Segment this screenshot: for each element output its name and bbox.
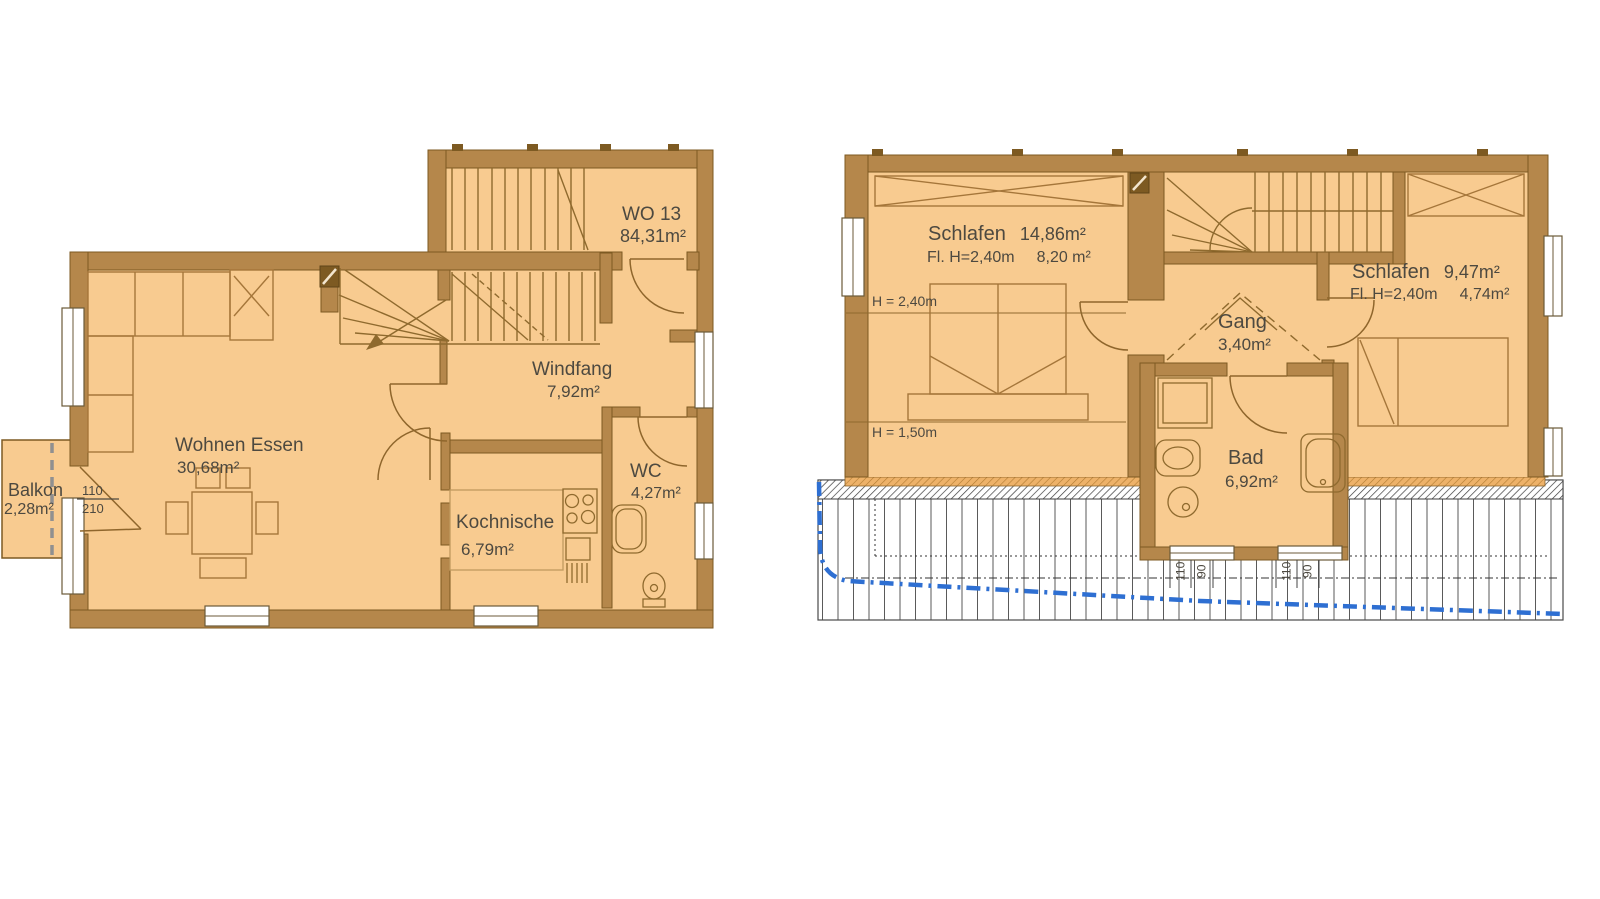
apartment-floor <box>70 252 713 628</box>
room-detail-bedroom-left: Fl. H=2,40m 8,20 m² <box>927 250 1091 267</box>
room-detail-bedroom-right: Fl. H=2,40m 4,74m² <box>1350 287 1509 304</box>
unit-number-label: WO 13 <box>622 205 681 225</box>
room-area-balcony: 2,28m² <box>4 502 54 519</box>
room-label-vestibule: Windfang <box>532 360 612 380</box>
bedroom-right-half-area: 4,74m² <box>1460 287 1510 304</box>
bedroom-left-area: 14,86m² <box>1020 225 1086 244</box>
room-label-bedroom-right: Schlafen 9,47m² <box>1352 262 1500 283</box>
room-area-bath: 6,92m² <box>1225 473 1278 491</box>
bedroom-right-area: 9,47m² <box>1444 263 1500 282</box>
room-label-bedroom-left: Schlafen 14,86m² <box>928 224 1086 245</box>
room-label-kitchen: Kochnische <box>456 513 554 533</box>
room-label-bath: Bad <box>1228 448 1264 469</box>
unit-area-label: 84,31m² <box>620 227 686 246</box>
bedroom-left-half-area: 8,20 m² <box>1037 250 1091 267</box>
room-label-balcony: Balkon <box>8 481 63 500</box>
room-label-hall: Gang <box>1218 312 1267 333</box>
bedroom-right-height: Fl. H=2,40m <box>1350 287 1438 304</box>
room-area-kitchen: 6,79m² <box>461 541 514 559</box>
height-line-lower-label: H = 1,50m <box>872 425 937 440</box>
bath-window1-height: 90 <box>1196 558 1209 584</box>
bedroom-right-name: Schlafen <box>1352 262 1430 283</box>
room-area-vestibule: 7,92m² <box>547 383 600 401</box>
room-label-living: Wohnen Essen <box>175 436 304 456</box>
upper-chimney-icon <box>1130 173 1149 193</box>
room-area-wc: 4,27m² <box>631 486 681 503</box>
bath-window2-width: 110 <box>1281 558 1294 584</box>
upper-floor-plan <box>818 149 1563 620</box>
bedroom-left-height: Fl. H=2,40m <box>927 250 1015 267</box>
chimney-icon <box>320 266 339 287</box>
bath-window2-height: 90 <box>1302 558 1315 584</box>
bedroom-left-name: Schlafen <box>928 224 1006 245</box>
room-label-wc: WC <box>630 462 662 482</box>
bath-window1-width: 110 <box>1175 558 1188 584</box>
height-line-upper-label: H = 2,40m <box>872 294 937 309</box>
room-area-hall: 3,40m² <box>1218 336 1271 354</box>
balcony-door-height: 210 <box>82 502 104 516</box>
balcony-door-width: 110 <box>82 484 103 498</box>
room-area-living: 30,68m² <box>177 459 239 477</box>
floorplan-canvas: WO 13 84,31m² Wohnen Essen 30,68m² Windf… <box>0 0 1600 899</box>
ground-floor-plan <box>2 144 713 628</box>
